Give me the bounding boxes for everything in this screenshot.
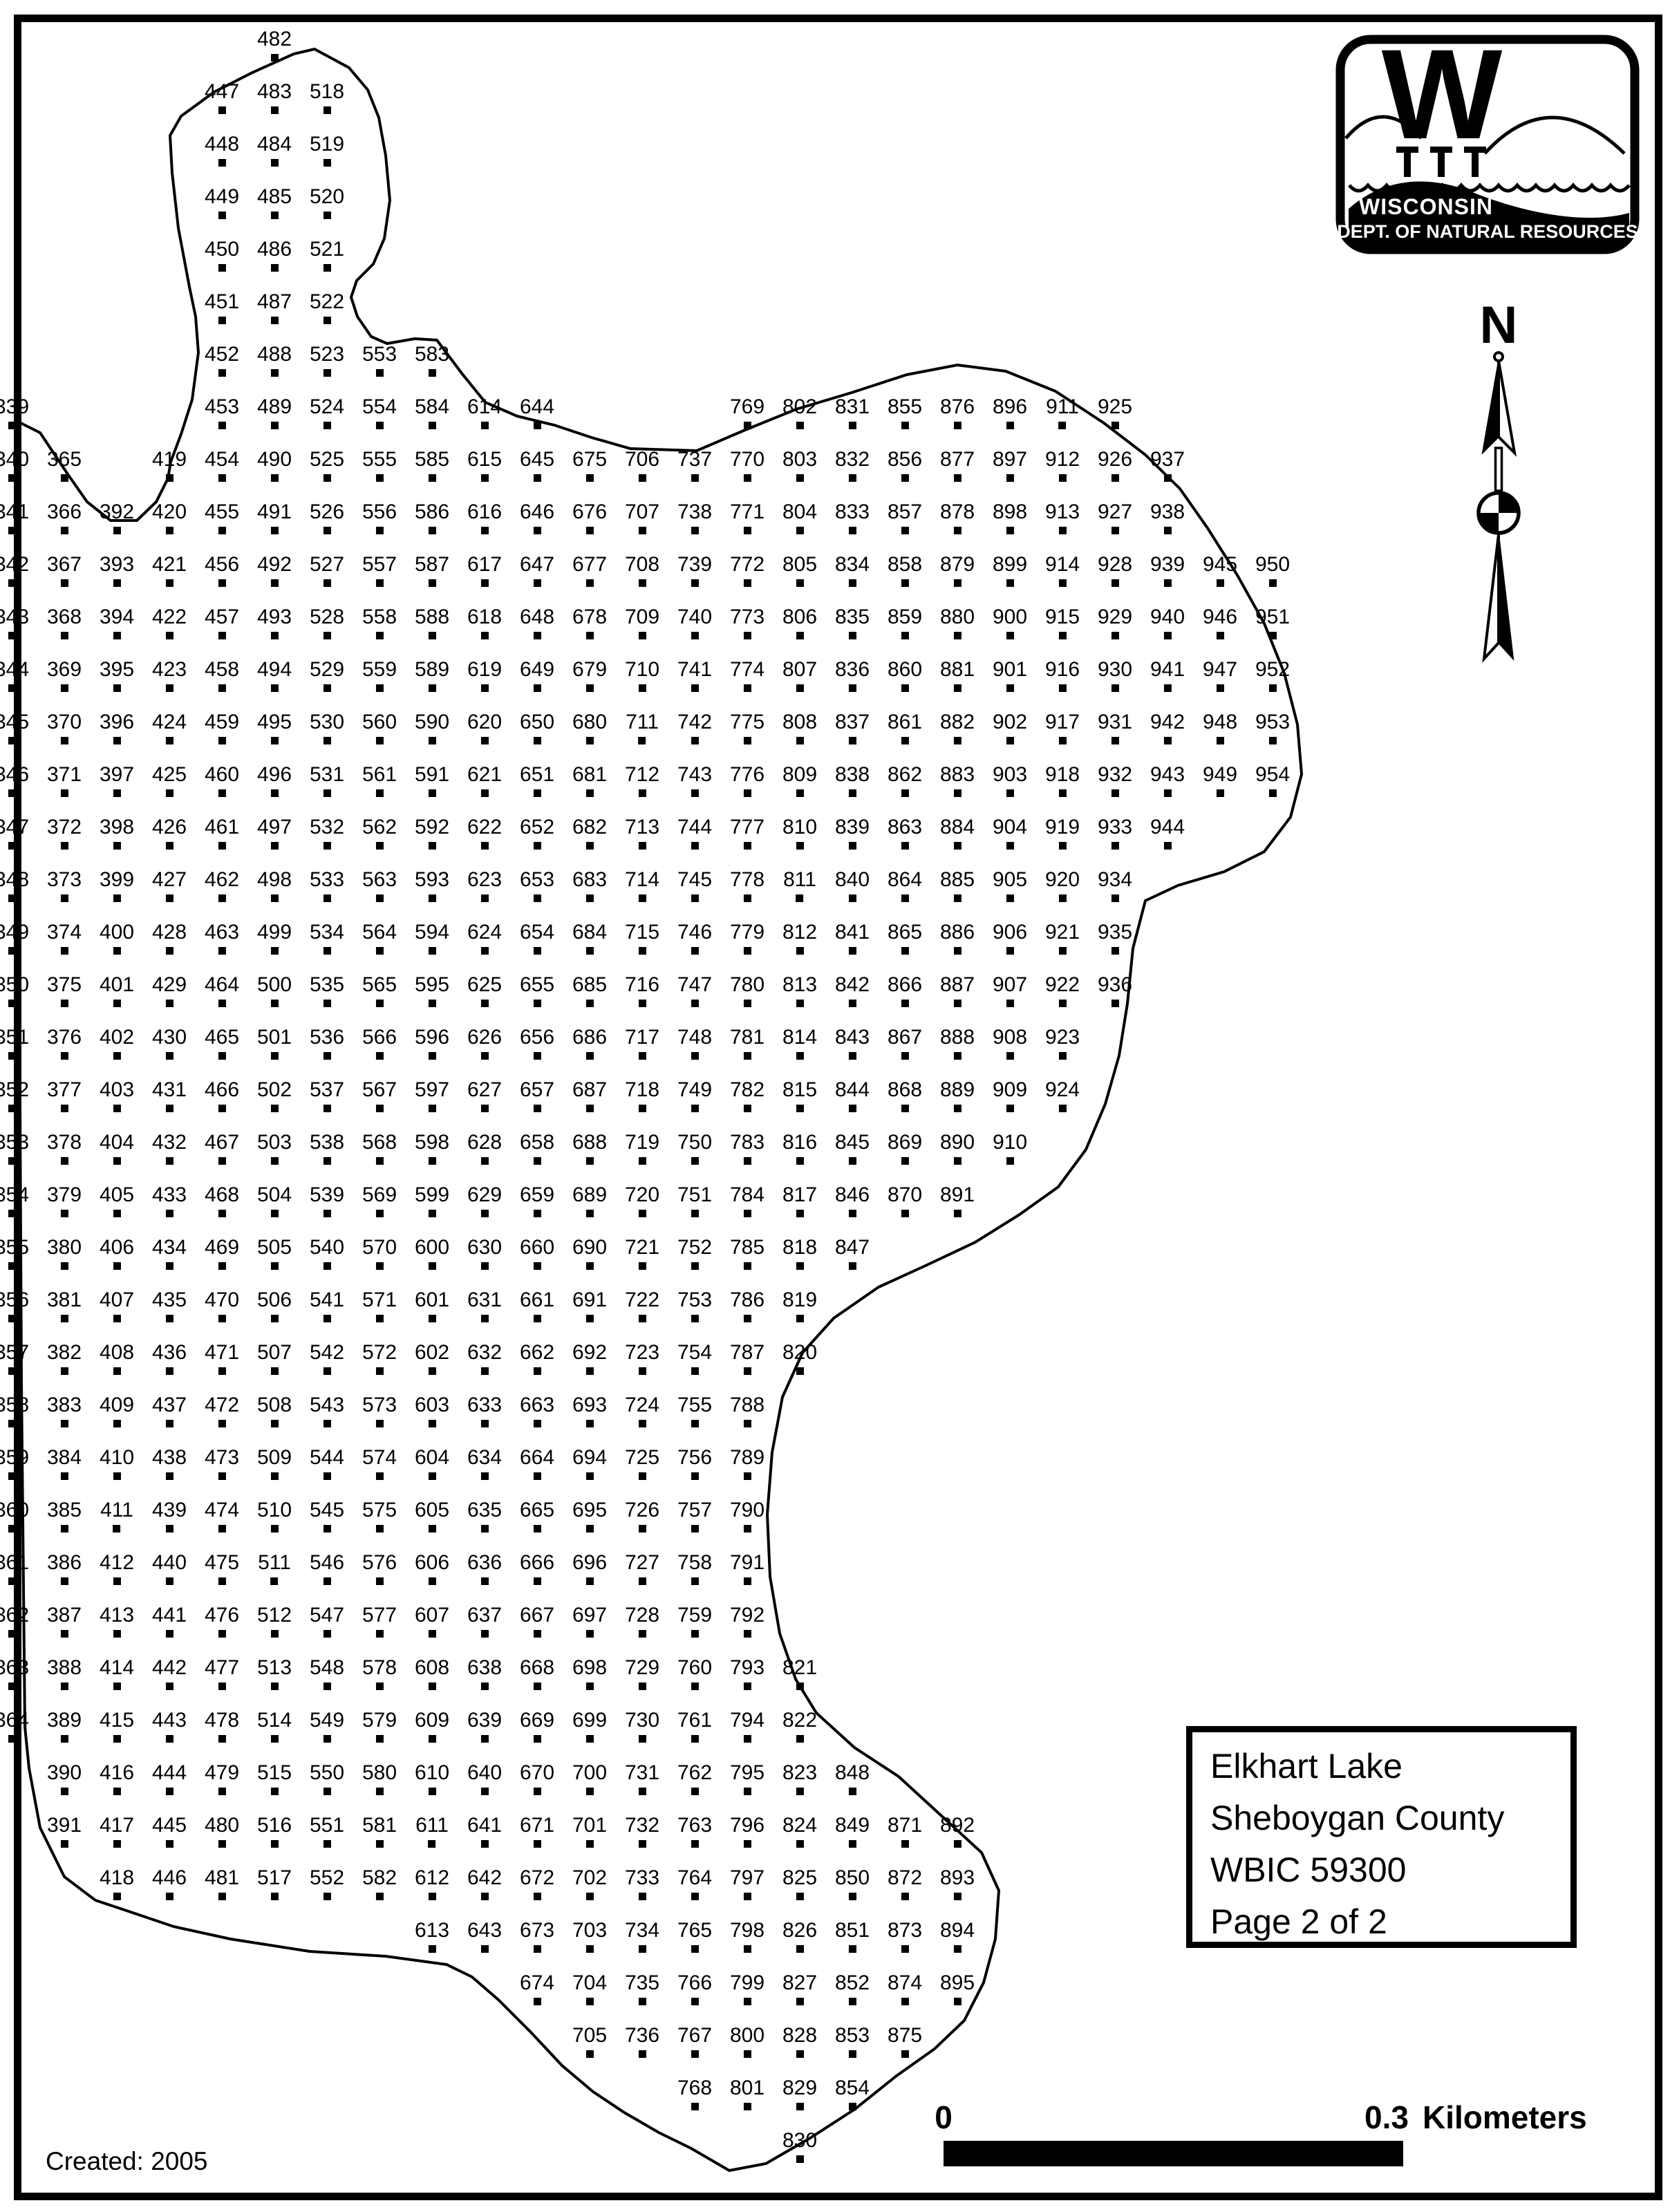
sample-point: 604 <box>415 1448 449 1480</box>
sample-point: 821 <box>782 1658 817 1690</box>
sample-marker-icon <box>8 842 16 850</box>
sample-point-number: 681 <box>572 765 607 785</box>
sample-point-number: 663 <box>520 1396 554 1415</box>
sample-point: 933 <box>1098 818 1132 850</box>
sample-point: 911 <box>1046 397 1079 429</box>
sample-point-number: 876 <box>940 397 975 417</box>
sample-marker-icon <box>113 579 121 587</box>
sample-marker-icon <box>639 1000 646 1007</box>
sample-marker-icon <box>166 632 173 639</box>
sample-point-number: 552 <box>310 1868 344 1888</box>
sample-point: 818 <box>782 1238 817 1270</box>
sample-point: 513 <box>257 1658 292 1690</box>
sample-point-number: 924 <box>1045 1080 1080 1100</box>
sample-marker-icon <box>796 1000 804 1007</box>
sample-point-number: 582 <box>362 1868 397 1888</box>
sample-point-number: 851 <box>835 1921 870 1940</box>
sample-marker-icon <box>481 684 489 692</box>
sample-point: 612 <box>415 1868 449 1900</box>
sample-point-number: 830 <box>782 2131 817 2150</box>
sample-point-number: 477 <box>205 1658 239 1678</box>
sample-point-number: 793 <box>730 1658 765 1678</box>
sample-point: 645 <box>520 450 554 482</box>
sample-marker-icon <box>744 1630 751 1638</box>
sample-marker-icon <box>1006 474 1014 482</box>
sample-marker-icon <box>271 1105 279 1112</box>
sample-point-number: 738 <box>677 503 712 522</box>
sample-point-number: 716 <box>625 975 659 995</box>
sample-point-number: 886 <box>940 923 975 942</box>
sample-point: 853 <box>835 2026 870 2058</box>
sample-point: 807 <box>782 660 817 692</box>
sample-marker-icon <box>271 1315 279 1322</box>
sample-point-number: 805 <box>782 555 817 574</box>
sample-marker-icon <box>218 1367 226 1375</box>
sample-marker-icon <box>796 1157 804 1165</box>
sample-point-number: 569 <box>362 1185 397 1205</box>
sample-marker-icon <box>323 1683 331 1690</box>
sample-marker-icon <box>901 1893 909 1900</box>
sample-point: 832 <box>835 450 870 482</box>
sample-marker-icon <box>586 474 594 482</box>
sample-marker-icon <box>218 1420 226 1427</box>
sample-marker-icon <box>691 1840 699 1848</box>
sample-point-number: 835 <box>835 608 870 627</box>
sample-marker-icon <box>586 1735 594 1743</box>
sample-point: 671 <box>520 1816 554 1848</box>
sample-point-number: 422 <box>152 608 187 627</box>
sample-marker-icon <box>849 1262 856 1270</box>
sample-marker-icon <box>481 789 489 797</box>
sample-point-number: 631 <box>467 1291 502 1310</box>
sample-marker-icon <box>744 1525 751 1533</box>
sample-point: 570 <box>362 1238 397 1270</box>
sample-point: 929 <box>1098 608 1132 639</box>
sample-point-number: 503 <box>257 1133 292 1152</box>
sample-marker-icon <box>586 1210 594 1217</box>
sample-marker-icon <box>1164 684 1172 692</box>
sample-point-number: 903 <box>993 765 1027 785</box>
sample-marker-icon <box>849 737 856 744</box>
sample-marker-icon <box>166 737 173 744</box>
sample-point: 430 <box>152 1028 187 1060</box>
sample-marker-icon <box>481 1052 489 1060</box>
sample-marker-icon <box>796 579 804 587</box>
sample-point: 719 <box>625 1133 659 1165</box>
sample-point-number: 852 <box>835 1974 870 1993</box>
sample-marker-icon <box>166 1367 173 1375</box>
sample-point: 785 <box>730 1238 765 1270</box>
sample-marker-icon <box>1111 894 1119 902</box>
sample-point-number: 815 <box>782 1080 817 1100</box>
sample-marker-icon <box>429 737 436 744</box>
sample-point-number: 439 <box>152 1501 187 1520</box>
sample-point-number: 518 <box>310 82 344 102</box>
sample-marker-icon <box>218 1840 226 1848</box>
sample-point: 546 <box>310 1553 344 1585</box>
sample-point-number: 623 <box>467 870 502 890</box>
sample-point-number: 527 <box>310 555 344 574</box>
sample-point: 953 <box>1255 713 1290 744</box>
sample-point-number: 800 <box>730 2026 765 2045</box>
sample-point-number: 450 <box>205 240 239 259</box>
sample-point-number: 375 <box>47 975 82 995</box>
sample-point-number: 388 <box>47 1658 82 1678</box>
sample-marker-icon <box>849 894 856 902</box>
sample-marker-icon <box>166 1420 173 1427</box>
sample-point-number: 377 <box>47 1080 82 1100</box>
sample-point: 634 <box>467 1448 502 1480</box>
sample-point: 480 <box>205 1816 239 1848</box>
sample-marker-icon <box>534 1525 541 1533</box>
sample-point: 951 <box>1255 608 1290 639</box>
sample-marker-icon <box>586 1000 594 1007</box>
sample-point: 456 <box>205 555 239 587</box>
sample-point-number: 788 <box>730 1396 765 1415</box>
sample-point-number: 674 <box>520 1974 554 1993</box>
sample-marker-icon <box>586 1157 594 1165</box>
sample-marker-icon <box>376 632 384 639</box>
sample-point: 568 <box>362 1133 397 1165</box>
sample-marker-icon <box>849 1000 856 1007</box>
sample-point-number: 538 <box>310 1133 344 1152</box>
sample-point: 695 <box>572 1501 607 1533</box>
sample-point: 386 <box>47 1553 82 1585</box>
sample-marker-icon <box>744 1840 751 1848</box>
sample-marker-icon <box>534 422 541 429</box>
sample-point: 860 <box>888 660 922 692</box>
sample-marker-icon <box>271 1735 279 1743</box>
sample-point-number: 340 <box>0 450 29 469</box>
sample-point-number: 624 <box>467 923 502 942</box>
sample-point-number: 734 <box>625 1921 659 1940</box>
sample-point-number: 819 <box>782 1291 817 1310</box>
sample-point-number: 599 <box>415 1185 449 1205</box>
sample-marker-icon <box>534 1945 541 1953</box>
sample-marker-icon <box>1269 579 1277 587</box>
sample-point-number: 385 <box>47 1501 82 1520</box>
sample-point-number: 424 <box>152 713 187 732</box>
sample-point-number: 882 <box>940 713 975 732</box>
sample-marker-icon <box>1059 684 1067 692</box>
sample-point-number: 365 <box>47 450 82 469</box>
sample-point: 477 <box>205 1658 239 1690</box>
sample-point-number: 478 <box>205 1711 239 1730</box>
sample-point: 542 <box>310 1343 344 1375</box>
sample-point: 878 <box>940 503 975 534</box>
sample-point-number: 470 <box>205 1291 239 1310</box>
sample-point-number: 350 <box>0 975 29 995</box>
sample-point: 761 <box>677 1711 712 1743</box>
sample-point-number: 417 <box>100 1816 134 1835</box>
sample-point: 882 <box>940 713 975 744</box>
sample-point-number: 447 <box>205 82 239 102</box>
sample-point-number: 348 <box>0 870 29 890</box>
sample-point: 848 <box>835 1763 870 1795</box>
sample-marker-icon <box>954 1945 962 1953</box>
sample-point-number: 571 <box>362 1291 397 1310</box>
sample-point: 392 <box>100 503 134 534</box>
sample-point: 584 <box>415 397 449 429</box>
sample-point: 909 <box>993 1080 1027 1112</box>
sample-point-number: 430 <box>152 1028 187 1047</box>
sample-marker-icon <box>954 737 962 744</box>
sample-marker-icon <box>849 684 856 692</box>
sample-marker-icon <box>796 1893 804 1900</box>
sample-marker-icon <box>744 422 751 429</box>
sample-point-number: 726 <box>625 1501 659 1520</box>
sample-marker-icon <box>901 422 909 429</box>
sample-marker-icon <box>1164 474 1172 482</box>
sample-marker-icon <box>271 894 279 902</box>
sample-marker-icon <box>1059 579 1067 587</box>
sample-point-number: 513 <box>257 1658 292 1678</box>
sample-marker-icon <box>796 1262 804 1270</box>
sample-marker-icon <box>271 579 279 587</box>
sample-marker-icon <box>323 1000 331 1007</box>
sample-point: 937 <box>1150 450 1185 482</box>
sample-point-number: 658 <box>520 1133 554 1152</box>
sample-point-number: 836 <box>835 660 870 679</box>
sample-point: 907 <box>993 975 1027 1007</box>
sample-marker-icon <box>270 1577 278 1585</box>
sample-point: 872 <box>888 1868 922 1900</box>
sample-marker-icon <box>166 527 173 534</box>
sample-marker-icon <box>1269 684 1277 692</box>
sample-point: 866 <box>888 975 922 1007</box>
sample-point: 742 <box>677 713 712 744</box>
sample-point: 503 <box>257 1133 292 1165</box>
sample-point-number: 444 <box>152 1763 187 1783</box>
sample-point: 364 <box>0 1711 29 1743</box>
sample-point-number: 694 <box>572 1448 607 1468</box>
sample-point: 619 <box>467 660 502 692</box>
sample-point-number: 692 <box>572 1343 607 1362</box>
sample-point-number: 925 <box>1098 397 1132 417</box>
sample-point-number: 615 <box>467 450 502 469</box>
sample-point-number: 748 <box>677 1028 712 1047</box>
sample-point: 381 <box>47 1291 82 1322</box>
sample-point: 755 <box>677 1396 712 1427</box>
sample-point: 904 <box>993 818 1027 850</box>
sample-point-number: 724 <box>625 1396 659 1415</box>
sample-point-number: 899 <box>993 555 1027 574</box>
sample-point: 665 <box>520 1501 554 1533</box>
sample-marker-icon <box>1111 947 1119 955</box>
sample-marker-icon <box>61 789 68 797</box>
sample-marker-icon <box>639 1840 646 1848</box>
sample-point: 781 <box>730 1028 765 1060</box>
sample-point-number: 904 <box>993 818 1027 837</box>
sample-marker-icon <box>849 1210 856 1217</box>
sample-point: 572 <box>362 1343 397 1375</box>
sample-point: 378 <box>47 1133 82 1165</box>
sample-marker-icon <box>481 1000 489 1007</box>
sample-marker-icon <box>796 789 804 797</box>
sample-point-number: 448 <box>205 135 239 154</box>
sample-point: 830 <box>782 2131 817 2163</box>
sample-point-number: 628 <box>467 1133 502 1152</box>
sample-point-number: 359 <box>0 1448 29 1468</box>
sample-marker-icon <box>744 947 751 955</box>
sample-point: 601 <box>415 1291 449 1322</box>
sample-point-number: 820 <box>782 1343 817 1362</box>
sample-marker-icon <box>1111 684 1119 692</box>
sample-point: 790 <box>730 1501 765 1533</box>
sample-point-number: 496 <box>257 765 292 785</box>
sample-point: 684 <box>572 923 607 955</box>
sample-point: 923 <box>1045 1028 1080 1060</box>
sample-point: 925 <box>1098 397 1132 429</box>
sample-point: 558 <box>362 608 397 639</box>
sample-point: 449 <box>205 187 239 219</box>
sample-point-number: 869 <box>888 1133 922 1152</box>
sample-point: 380 <box>47 1238 82 1270</box>
sample-marker-icon <box>218 842 226 850</box>
sample-point: 431 <box>152 1080 187 1112</box>
sample-point: 651 <box>520 765 554 797</box>
sample-marker-icon <box>586 1893 594 1900</box>
sample-point-number: 641 <box>467 1816 502 1835</box>
sample-marker-icon <box>586 737 594 744</box>
sample-marker-icon <box>954 842 962 850</box>
sample-point: 697 <box>572 1606 607 1638</box>
sample-point: 388 <box>47 1658 82 1690</box>
sample-marker-icon <box>8 1000 16 1007</box>
sample-point-number: 785 <box>730 1238 765 1257</box>
sample-point-number: 593 <box>415 870 449 890</box>
sample-marker-icon <box>218 422 226 429</box>
sample-marker-icon <box>8 1105 16 1112</box>
sample-point-number: 854 <box>835 2079 870 2098</box>
sample-point: 806 <box>782 608 817 639</box>
sample-marker-icon <box>901 1998 909 2005</box>
sample-point-number: 714 <box>625 870 659 890</box>
sample-point-number: 413 <box>100 1606 134 1625</box>
sample-marker-icon <box>691 1893 699 1900</box>
sample-point-number: 500 <box>257 975 292 995</box>
sample-marker-icon <box>534 1052 541 1060</box>
sample-point-number: 514 <box>257 1711 292 1730</box>
sample-marker-icon <box>166 947 173 955</box>
sample-marker-icon <box>323 947 331 955</box>
sample-point-number: 583 <box>415 345 449 364</box>
sample-point: 549 <box>310 1711 344 1743</box>
sample-point-number: 811 <box>783 870 816 890</box>
map-page: N W <box>0 0 1679 2212</box>
sample-marker-icon <box>639 1893 646 1900</box>
sample-point-number: 807 <box>782 660 817 679</box>
sample-point-number: 485 <box>257 187 292 207</box>
sample-marker-icon <box>376 1472 384 1480</box>
sample-marker-icon <box>376 894 384 902</box>
sample-point: 812 <box>782 923 817 955</box>
sample-point: 756 <box>677 1448 712 1480</box>
sample-point: 597 <box>415 1080 449 1112</box>
sample-point-number: 792 <box>730 1606 765 1625</box>
sample-marker-icon <box>323 789 331 797</box>
sample-marker-icon <box>901 632 909 639</box>
sample-point: 408 <box>100 1343 134 1375</box>
sample-marker-icon <box>271 422 279 429</box>
sample-point: 856 <box>888 450 922 482</box>
sample-point-number: 651 <box>520 765 554 785</box>
sample-marker-icon <box>1217 789 1224 797</box>
sample-marker-icon <box>691 947 699 955</box>
sample-marker-icon <box>1006 947 1014 955</box>
sample-point-number: 616 <box>467 503 502 522</box>
sample-point: 850 <box>835 1868 870 1900</box>
sample-point-number: 686 <box>572 1028 607 1047</box>
sample-marker-icon <box>113 1210 121 1217</box>
sample-point-number: 866 <box>888 975 922 995</box>
sample-point-number: 528 <box>310 608 344 627</box>
sample-point-number: 887 <box>940 975 975 995</box>
sample-point-number: 810 <box>782 818 817 837</box>
sample-point-number: 688 <box>572 1133 607 1152</box>
sample-marker-icon <box>849 947 856 955</box>
sample-marker-icon <box>8 1210 16 1217</box>
sample-point-number: 930 <box>1098 660 1132 679</box>
sample-point-number: 826 <box>782 1921 817 1940</box>
sample-point-number: 938 <box>1150 503 1185 522</box>
sample-point-number: 613 <box>415 1921 449 1940</box>
sample-point-number: 723 <box>625 1343 659 1362</box>
sample-marker-icon <box>166 1472 173 1480</box>
sample-point: 586 <box>415 503 449 534</box>
sample-point: 808 <box>782 713 817 744</box>
sample-marker-icon <box>1164 842 1172 850</box>
sample-marker-icon <box>376 1683 384 1690</box>
sample-point-number: 530 <box>310 713 344 732</box>
sample-point: 954 <box>1255 765 1290 797</box>
sample-marker-icon <box>323 212 331 219</box>
sample-marker-icon <box>691 632 699 639</box>
sample-point: 379 <box>47 1185 82 1217</box>
sample-point-number: 549 <box>310 1711 344 1730</box>
sample-marker-icon <box>61 1157 68 1165</box>
sample-point-number: 497 <box>257 818 292 837</box>
sample-point: 553 <box>362 345 397 377</box>
sample-marker-icon <box>61 1683 68 1690</box>
sample-point-number: 920 <box>1045 870 1080 890</box>
sample-point-number: 614 <box>467 397 502 417</box>
sample-marker-icon <box>691 1472 699 1480</box>
sample-point-number: 789 <box>730 1448 765 1468</box>
sample-marker-icon <box>586 894 594 902</box>
sample-point: 670 <box>520 1763 554 1795</box>
sample-point: 624 <box>467 923 502 955</box>
sample-point: 529 <box>310 660 344 692</box>
sample-point: 544 <box>310 1448 344 1480</box>
sample-marker-icon <box>61 1472 68 1480</box>
sample-point: 903 <box>993 765 1027 797</box>
sample-point: 844 <box>835 1080 870 1112</box>
sample-point-number: 758 <box>677 1553 712 1573</box>
sample-marker-icon <box>8 894 16 902</box>
sample-point: 731 <box>625 1763 659 1795</box>
sample-point: 405 <box>100 1185 134 1217</box>
sample-marker-icon <box>376 369 384 377</box>
sample-point: 828 <box>782 2026 817 2058</box>
sample-marker-icon <box>376 947 384 955</box>
sample-point: 867 <box>888 1028 922 1060</box>
sample-marker-icon <box>166 1577 173 1585</box>
sample-marker-icon <box>691 1998 699 2005</box>
sample-point-number: 728 <box>625 1606 659 1625</box>
sample-point-number: 339 <box>0 397 29 417</box>
sample-point: 913 <box>1045 503 1080 534</box>
